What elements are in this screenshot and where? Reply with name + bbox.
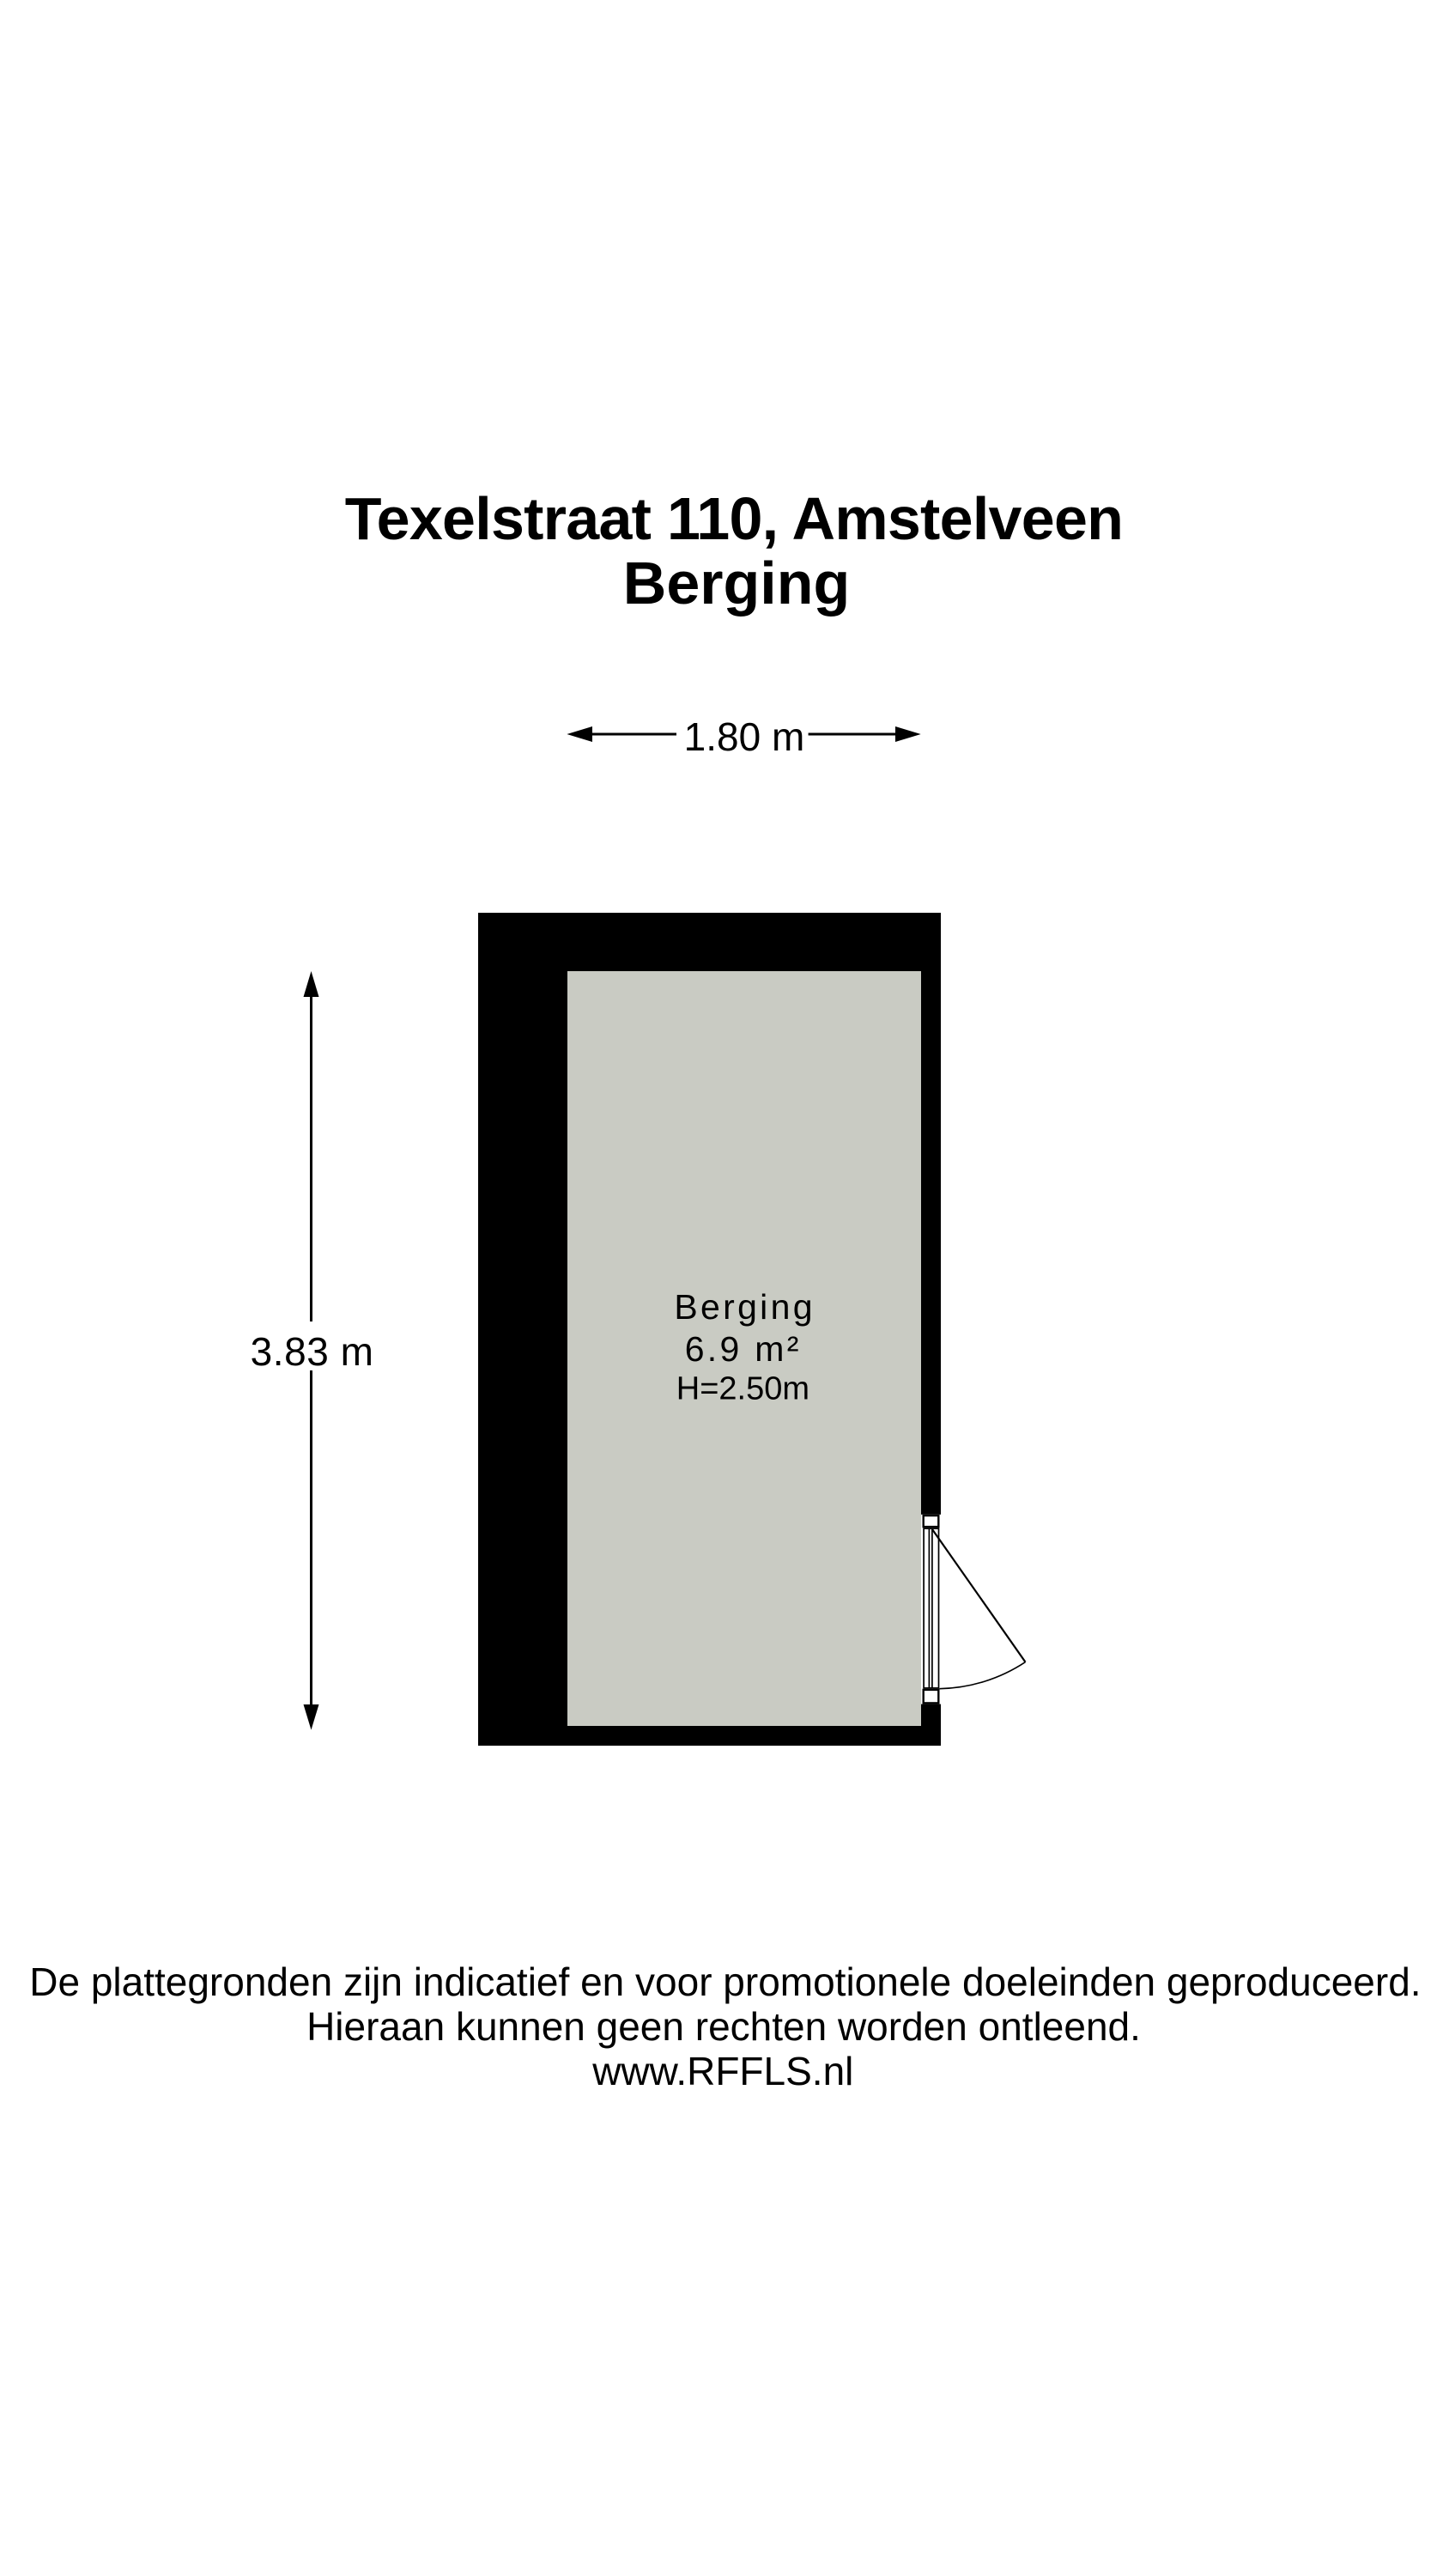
- svg-text:Texelstraat 110, Amstelveen: Texelstraat 110, Amstelveen: [345, 485, 1123, 552]
- svg-text:H=2.50m: H=2.50m: [676, 1371, 809, 1407]
- svg-text:3.83 m: 3.83 m: [251, 1329, 374, 1374]
- svg-text:De plattegronden zijn indicati: De plattegronden zijn indicatief en voor…: [29, 1959, 1421, 2004]
- svg-text:6.9 m²: 6.9 m²: [685, 1329, 802, 1369]
- svg-text:Hieraan kunnen geen rechten wo: Hieraan kunnen geen rechten worden ontle…: [306, 2004, 1141, 2049]
- svg-text:www.RFFLS.nl: www.RFFLS.nl: [591, 2049, 853, 2093]
- svg-text:Berging: Berging: [623, 550, 850, 617]
- svg-text:1.80 m: 1.80 m: [684, 714, 805, 759]
- svg-text:Berging: Berging: [674, 1287, 815, 1327]
